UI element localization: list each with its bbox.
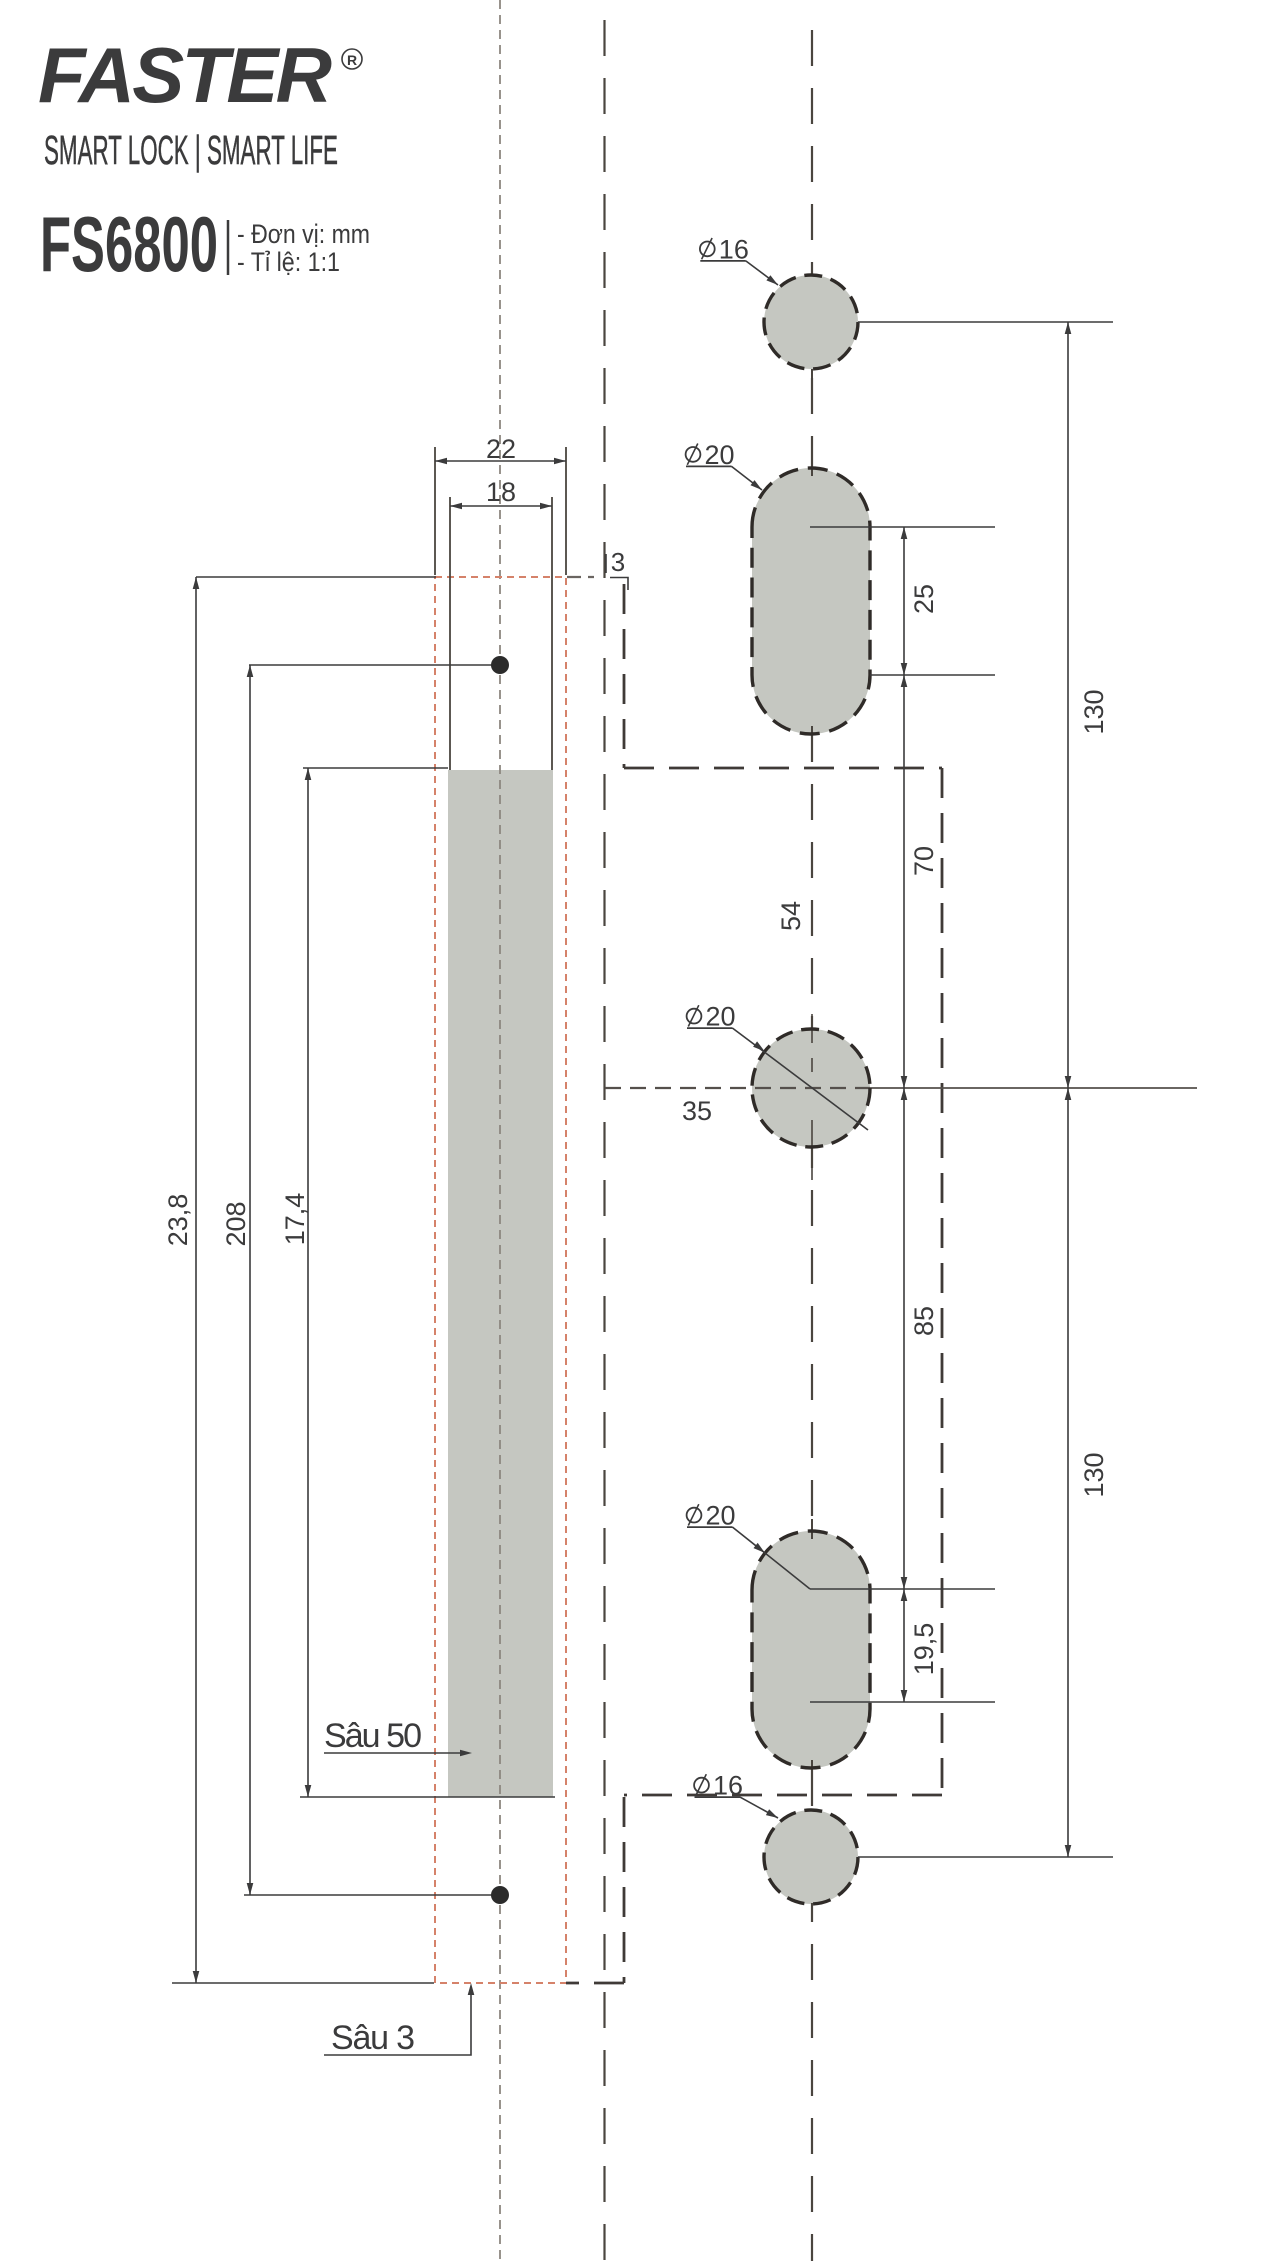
svg-text:- Đơn vị: mm: - Đơn vị: mm — [237, 219, 370, 249]
svg-text:70: 70 — [909, 846, 939, 876]
svg-text:25: 25 — [909, 584, 939, 614]
svg-text:130: 130 — [1079, 1452, 1109, 1497]
svg-text:3: 3 — [611, 547, 625, 577]
svg-text:SMART LOCK | SMART LIFE: SMART LOCK | SMART LIFE — [44, 127, 338, 173]
svg-text:R: R — [347, 52, 357, 68]
svg-text:FS6800: FS6800 — [40, 200, 218, 288]
svg-text:35: 35 — [682, 1096, 712, 1126]
svg-text:22: 22 — [486, 434, 516, 464]
svg-text:- Tỉ lệ: 1:1: - Tỉ lệ: 1:1 — [237, 247, 340, 277]
svg-text:20: 20 — [706, 1002, 736, 1032]
svg-text:18: 18 — [486, 477, 516, 507]
svg-text:54: 54 — [776, 901, 806, 931]
svg-text:130: 130 — [1079, 689, 1109, 734]
svg-text:Sâu 3: Sâu 3 — [331, 2019, 415, 2057]
svg-text:85: 85 — [909, 1306, 939, 1336]
svg-text:208: 208 — [221, 1201, 251, 1246]
svg-text:FASTER: FASTER — [38, 31, 332, 119]
svg-text:20: 20 — [705, 440, 735, 470]
svg-text:19,5: 19,5 — [909, 1623, 939, 1676]
svg-text:16: 16 — [719, 234, 749, 264]
svg-text:17,4: 17,4 — [280, 1193, 310, 1246]
svg-text:Sâu 50: Sâu 50 — [324, 1717, 422, 1755]
svg-text:16: 16 — [713, 1771, 743, 1801]
svg-text:20: 20 — [706, 1501, 736, 1531]
svg-text:23,8: 23,8 — [163, 1194, 193, 1247]
